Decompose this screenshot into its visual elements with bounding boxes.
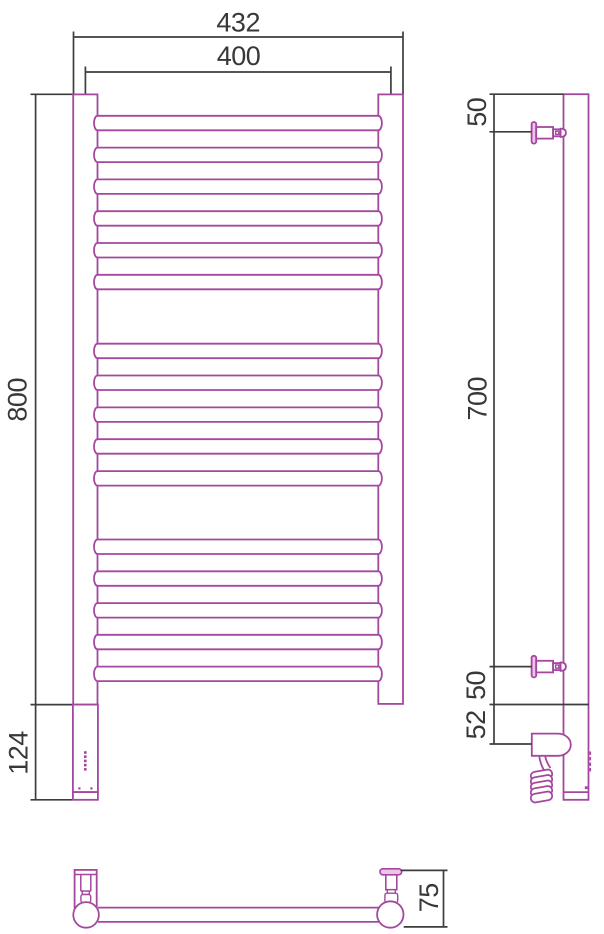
svg-text:432: 432 (216, 8, 260, 38)
svg-text:400: 400 (217, 41, 261, 71)
svg-text:800: 800 (3, 378, 33, 422)
svg-text:50: 50 (462, 98, 492, 127)
svg-text:124: 124 (3, 731, 33, 775)
svg-text:52: 52 (461, 710, 491, 739)
svg-text:75: 75 (414, 883, 444, 912)
svg-text:700: 700 (463, 377, 493, 421)
svg-text:50: 50 (461, 671, 491, 700)
